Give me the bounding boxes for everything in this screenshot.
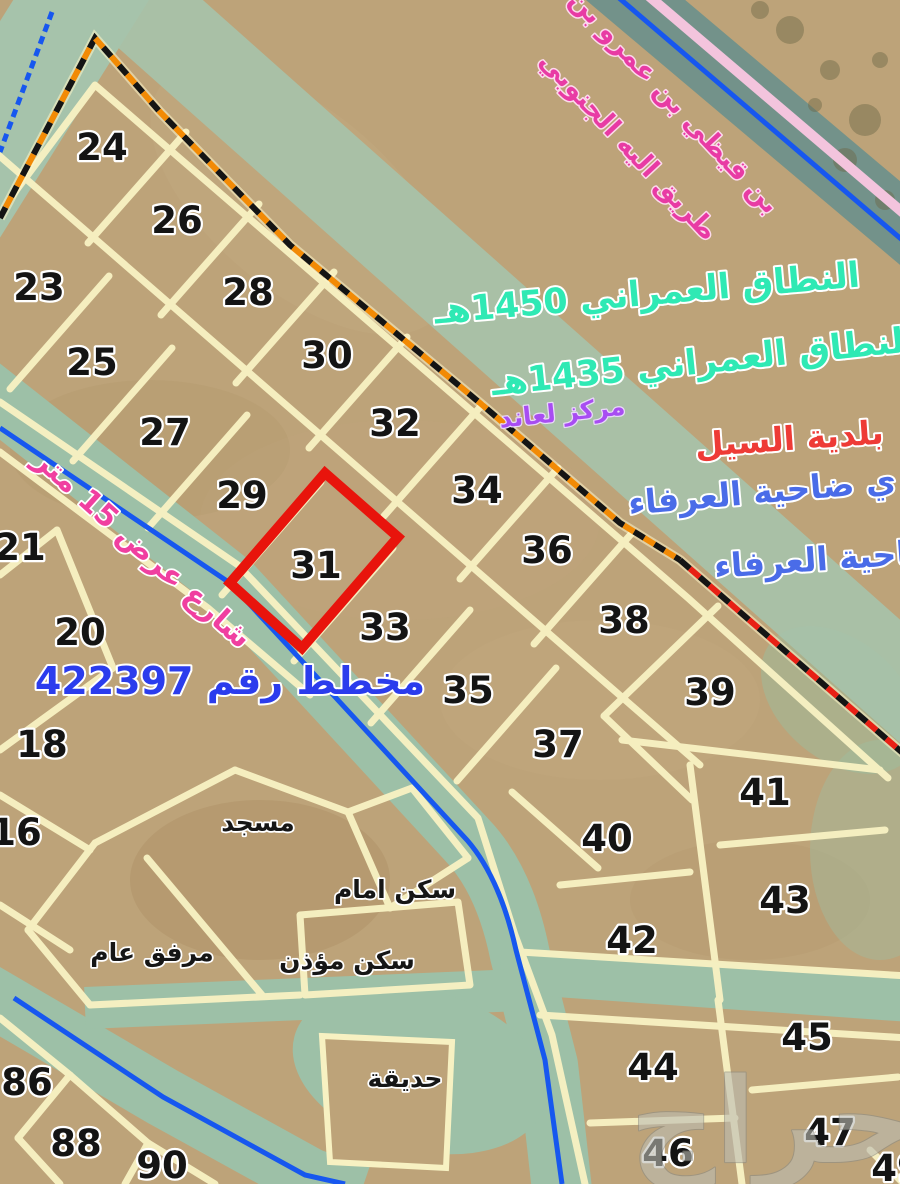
facility-label-garden: حديقة	[368, 1064, 443, 1093]
plot-number-88: 88	[50, 1122, 102, 1165]
plot-number-37: 37	[532, 723, 584, 766]
plot-number-26: 26	[151, 199, 203, 242]
facility-label-public-facility: مرفق عام	[90, 938, 213, 968]
plot-number-40: 40	[581, 817, 633, 860]
plot-number-16: 16	[0, 811, 42, 854]
plan-number-label: مخطط رقم 422397	[35, 659, 425, 704]
plot-number-23: 23	[13, 266, 65, 309]
plot-number-28: 28	[222, 271, 274, 314]
plot-number-29: 29	[216, 474, 268, 517]
plot-map: 2426232825302732293421313633382035391837…	[0, 0, 900, 1184]
plot-number-20: 20	[54, 611, 106, 654]
plot-number-34: 34	[451, 469, 503, 512]
plot-number-42: 42	[606, 919, 658, 962]
plot-number-36: 36	[521, 529, 573, 572]
plot-number-32: 32	[369, 402, 421, 445]
facility-label-imam-residence: سكن امام	[334, 875, 456, 905]
facility-label-mosque: مسجد	[221, 808, 294, 837]
plot-number-86: 86	[1, 1061, 53, 1104]
plot-number-30: 30	[301, 334, 353, 377]
plot-number-43: 43	[759, 879, 811, 922]
plot-number-18: 18	[16, 723, 68, 766]
plot-number-24: 24	[76, 126, 128, 169]
plot-number-90: 90	[136, 1144, 188, 1184]
map-canvas: 2426232825302732293421313633382035391837…	[0, 0, 900, 1184]
haraj-watermark: حراج	[630, 1052, 900, 1184]
plot-number-41: 41	[739, 771, 791, 814]
plot-number-38: 38	[598, 599, 650, 642]
plot-number-31: 31	[290, 544, 342, 587]
facility-label-muezzin-residence: سكن مؤذن	[279, 946, 415, 976]
plot-number-27: 27	[139, 411, 191, 454]
plot-number-21: 21	[0, 526, 46, 569]
plot-number-39: 39	[684, 671, 736, 714]
garden-plot	[322, 1036, 452, 1168]
plot-number-25: 25	[66, 341, 118, 384]
plot-number-33: 33	[359, 606, 411, 649]
plot-number-35: 35	[442, 669, 494, 712]
